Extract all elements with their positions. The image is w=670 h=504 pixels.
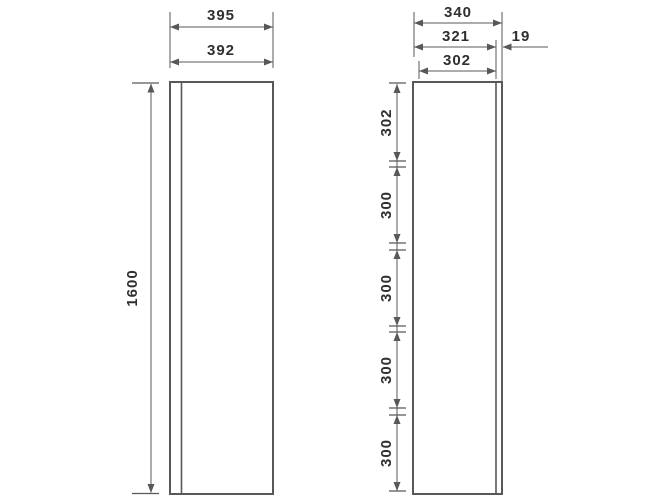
dim-label-chain-seg3: 300: [378, 274, 395, 302]
dim-front-widths: 395 392: [170, 7, 273, 68]
cabinet-dimension-drawing: 395 392 1600 340 321 19: [0, 0, 670, 504]
dim-side-depths: 340 321 19 302: [414, 4, 548, 81]
technical-drawing-canvas: 395 392 1600 340 321 19: [0, 0, 670, 504]
dim-label-front-overall-width: 395: [207, 7, 235, 24]
dim-label-chain-seg4: 300: [378, 356, 395, 384]
side-view: 340 321 19 302 302: [378, 4, 548, 494]
dim-label-side-inner-depth: 302: [443, 52, 471, 69]
dim-label-chain-seg2: 300: [378, 191, 395, 219]
front-view-outline: [170, 82, 273, 494]
dim-label-side-overall-depth: 340: [444, 4, 472, 21]
dim-side-vertical-chain: 302 300 300 300 300: [378, 83, 406, 491]
front-view: 395 392 1600: [124, 7, 273, 494]
dim-label-front-height: 1600: [124, 269, 141, 306]
dim-label-side-carcass-depth: 321: [442, 28, 470, 45]
dim-label-front-door-width: 392: [207, 42, 235, 59]
dim-label-chain-seg1: 302: [378, 108, 395, 136]
side-view-outline: [413, 82, 502, 494]
dim-label-side-door-thickness: 19: [512, 28, 531, 45]
dim-label-chain-seg5: 300: [378, 439, 395, 467]
dim-front-height: 1600: [124, 83, 159, 494]
